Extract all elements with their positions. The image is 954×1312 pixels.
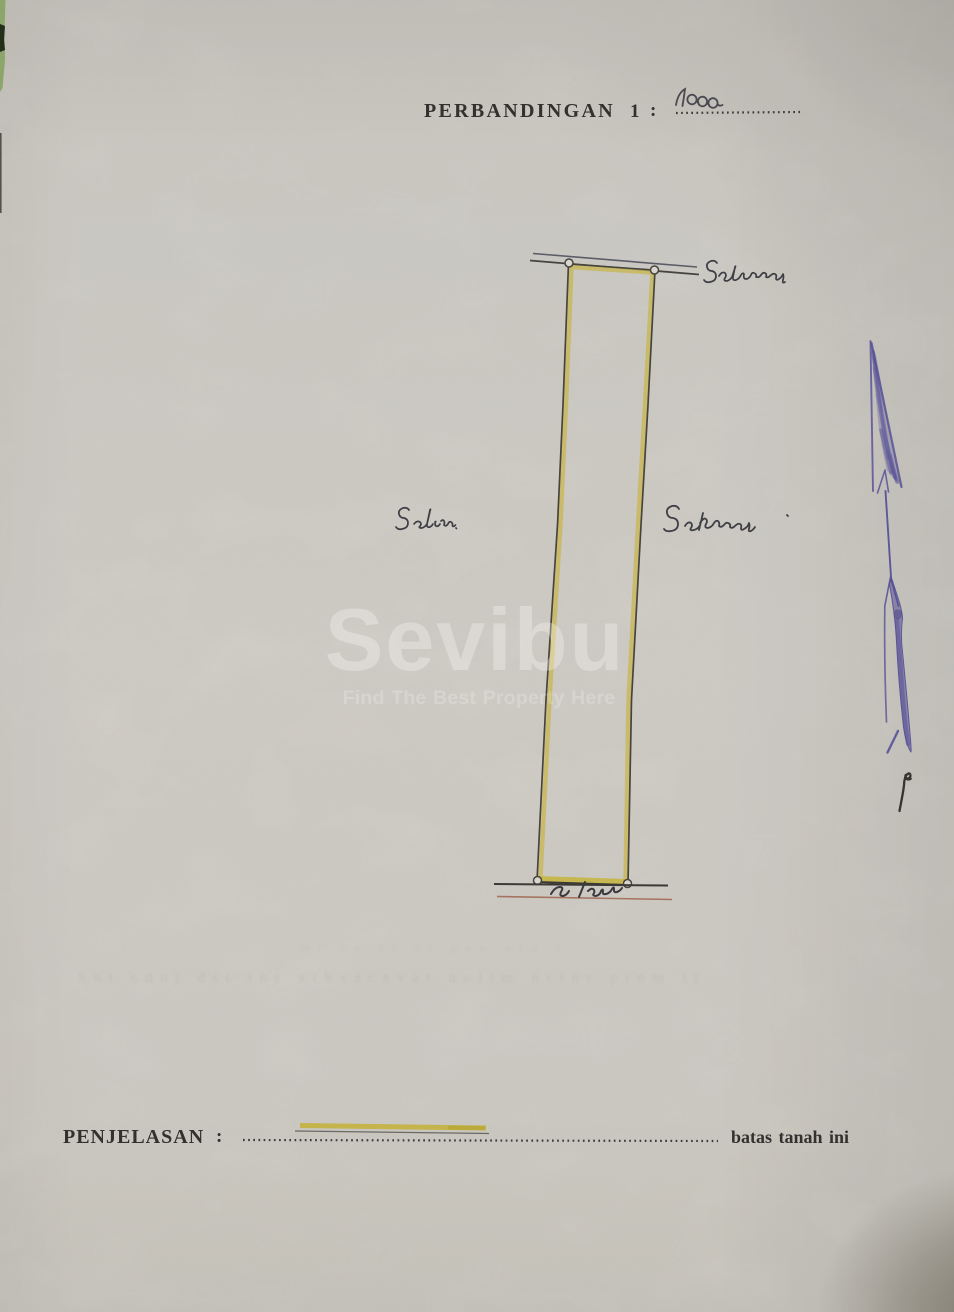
svg-text:Find The Best Property Here: Find The Best Property Here: [343, 687, 616, 709]
svg-text:1: 1: [630, 101, 640, 122]
svg-text:PENJELASAN: PENJELASAN: [63, 1126, 204, 1148]
svg-text::: :: [650, 100, 656, 121]
svg-text::: :: [216, 1126, 222, 1147]
svg-text:batas tanah ini: batas tanah ini: [731, 1127, 849, 1147]
svg-text:PERBANDINGAN: PERBANDINGAN: [424, 100, 615, 122]
svg-text:Sevibu: Sevibu: [325, 590, 626, 689]
